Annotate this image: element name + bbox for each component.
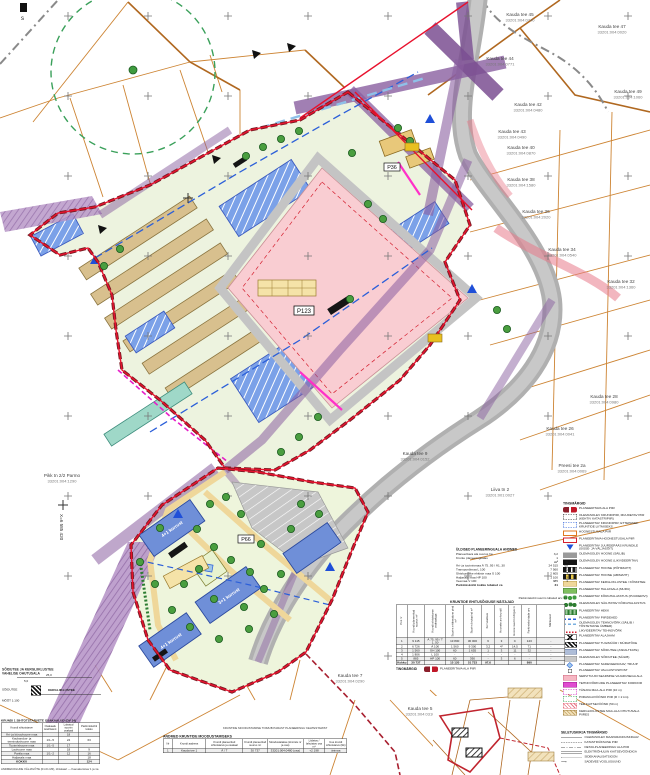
parcel-name: Kauda tee 36: [522, 209, 550, 214]
balance-label: Parkimiskohti kokku lubatud ca: [456, 584, 541, 588]
survey-cross: [384, 572, 392, 580]
column-header: Uue krundi sihtotstarve (liik): [325, 739, 347, 749]
legend-item-label: PLANEERITAV PIIRDEAED: [579, 616, 617, 619]
parcel-name: Kauda tee 42: [514, 102, 542, 107]
tree-icon: [315, 510, 322, 517]
survey-cross: [624, 252, 632, 260]
table-cell: 6: [481, 638, 495, 645]
parcel-code: 33201:004:0740: [506, 17, 536, 22]
parcel-code: 33201:004:0290: [336, 678, 366, 683]
legend-item: HOONESTUSALA PIIR: [563, 530, 649, 536]
table-cell: [508, 661, 522, 665]
parcel-name: Kauda tee 7: [338, 673, 363, 678]
line-legend-item: KATASTRIÜKSUSE PIIR: [561, 741, 650, 744]
table-row: 1Kauda tee 1Ä / T30 73733201:004:0480 (o…: [163, 749, 347, 753]
column-header: Parkimiskohti kokku: [79, 723, 100, 733]
tree-icon: [314, 413, 321, 420]
tree-icon: [227, 556, 234, 563]
table-cell: Kaubandus- ja teenindushoone maa: [1, 737, 42, 744]
north-arrow-icon: s: [20, 3, 27, 22]
line-legend-list: OLEMASOLEV MAAPARANDUSKRAAVKATASTRIÜKSUS…: [561, 736, 650, 764]
table-cell: [495, 661, 508, 665]
parcel-code: 33201:004:0980: [590, 399, 620, 404]
ls-dotted-icon: [561, 757, 582, 758]
table-cell: 890: [522, 661, 537, 665]
parcel-code: 33201:004:1060: [614, 94, 644, 99]
dimension-total: 25,0: [46, 674, 52, 677]
line-legend-label: SADEVEE VOOLUSUUND: [585, 760, 621, 763]
survey-cross: [224, 92, 232, 100]
boundary-legend-inline: TINGMÄRGID PLANEERITAVA ALA PIIR: [396, 667, 568, 673]
sw-dashblue-icon: [563, 522, 577, 528]
table-cell: [58, 760, 78, 764]
ls-dashed-icon: [561, 742, 582, 743]
survey-cross: [544, 92, 552, 100]
legend-item-label: PLANEERITAV TUGIMÜÜR / MÜRATÕKE: [579, 642, 637, 645]
column-header: Korruselisus: [481, 605, 495, 638]
tree-icon: [493, 306, 500, 313]
column-header: Hoone suurim kõrgus m: [508, 605, 522, 638]
column-header-text: Pos nr: [400, 617, 403, 625]
line-legend-panel: SELETUSKIRJA TINGMÄRGID OLEMASOLEV MAAPA…: [561, 731, 650, 775]
survey-cross: [624, 172, 632, 180]
section-diagram: 25,0 5,0 SÕIDUTEE KERGLIIKLUSTEE MÕÕT 1:…: [2, 678, 157, 706]
column-header-text: Märkused: [549, 615, 552, 627]
legend-item: PLANEERITAV KÕRGHALJASTUS (PUUDERIVI): [563, 595, 649, 601]
tree-icon: [215, 635, 222, 642]
survey-cross: [64, 92, 72, 100]
sw-redpair-icon: [563, 507, 577, 513]
tree-icon: [116, 245, 123, 252]
table-cell: 13 800: [446, 638, 464, 645]
table-cell: 15 120: [446, 661, 464, 665]
survey-cross: [64, 332, 72, 340]
dimension-left: 5,0: [24, 680, 28, 683]
table-cell: -: [537, 638, 565, 645]
survey-cross: [624, 12, 632, 20]
legend-item-label: PLANEERITAV SÕIDUTEE (ASFALTKATE): [579, 649, 639, 652]
balance-percent: [558, 584, 568, 588]
section-title-2: VAHELISE OHUTUSALA: [2, 672, 157, 676]
tree-icon: [346, 295, 353, 302]
legend-list: PLANEERITAVA ALA PIIROLEMASOLEV KRUNDIPI…: [563, 507, 649, 717]
column-header: Liidetav / lahutatav osa m²: [303, 739, 325, 749]
table-cell: 124: [79, 760, 100, 764]
table-row: Kaubandus- ja teenindushoone maa1/1–5246…: [1, 737, 100, 744]
legend-item-label: PLANEERITAV SADEVEEKRAAV; TRUUP: [579, 663, 638, 666]
parcel-name: Kauda tee 49: [614, 89, 642, 94]
table-cell: Ä / T: [206, 749, 243, 753]
building-rights-table: Pos nrKrundi planeeritud suurus m²Krundi…: [396, 605, 565, 666]
survey-cross: [64, 492, 72, 500]
column-header: Krundi planeeritud suurus m²: [407, 605, 424, 638]
table-cell: Kokku: [396, 661, 407, 665]
boundary-swatch-icon: [424, 667, 438, 673]
parcel-name: Liiva tn 2: [491, 487, 510, 492]
column-header-text: Hoone suurim kõrgus m: [513, 606, 516, 636]
parcel-code: 33201:004:0480: [514, 107, 544, 112]
table-cell: 123: [522, 638, 537, 645]
legend-item: TÄNAVA MAA-ALA PIIR (10 m): [563, 689, 649, 695]
sw-tanhatch-icon: [563, 710, 577, 716]
tree-icon: [245, 625, 252, 632]
tree-icon: [100, 262, 107, 269]
legend-item-label: PLANEERITAV KRUNDIPIIR; ETTEPANEK KRUNTI…: [579, 522, 649, 529]
table-cell: C: [508, 638, 522, 645]
line-legend-label: OLEMASOLEV MAAPARANDUSKRAAV: [585, 736, 639, 739]
svg-text:s: s: [21, 16, 24, 22]
legend-item-label: OLEMASOLEV HOONE (SÄILIB): [579, 553, 625, 556]
legend-item: OLEMASOLEV HOONE (LIKVIDEERITAV): [563, 560, 649, 566]
legend-item: PLANEERITAV VALGUSTUSPOST: [563, 669, 649, 673]
line-legend-label: ELEKTRIÕHULIIN KAITSEVÖÖNDIGA: [585, 751, 637, 754]
parcel-code: 33201:001:0027: [486, 492, 516, 497]
building-rights-panel: Parkimiskohti suurim lubatud arv: 31 KRU…: [396, 597, 568, 705]
legend-item: PLANEERITAV SÕIDUTEE (ASFALTKATE): [563, 649, 649, 655]
legend-item-label: PLANEERITAV HOONE (PÕHIMAHT): [579, 567, 631, 570]
line-legend-label: DETAILPLANEERINGU ALA PIIR: [585, 746, 630, 749]
legend-item: OLEMASOLEV HOONE (SÄILIB): [563, 553, 649, 559]
tree-icon: [180, 580, 187, 587]
column-header-text: Korruselisus: [487, 613, 490, 628]
tree-icon: [257, 540, 264, 547]
column-header-text: Parkimiskohtade arv: [528, 608, 531, 633]
column-header: Nr: [163, 739, 172, 749]
table-cell: 9 115: [407, 638, 424, 645]
tree-icon: [277, 448, 284, 455]
parcel-code: 33201:004:0020: [598, 29, 628, 34]
tree-icon: [136, 558, 143, 565]
column-header: Hoonete arv krundil: [495, 605, 508, 638]
legend-item-label: PLANEERITAV HALJASALA (MURU): [579, 588, 630, 591]
legend-item: PLANEERITAV HEKK: [563, 609, 649, 615]
parcel-code: 33201:004:1580: [507, 182, 537, 187]
ls-solid-icon: [561, 737, 582, 738]
legend-item: OLEMASOLEV SÕIDUTEE (SÄILIB): [563, 656, 649, 662]
table-cell: 1/1–5: [42, 737, 58, 744]
parcel-name: Kauda tee 9: [403, 451, 428, 456]
tree-icon: [348, 149, 355, 156]
tree-icon: [277, 570, 284, 577]
line-legend-label: KATASTRIÜKSUSE PIIR: [585, 741, 618, 744]
column-header-text: Krundi sihtotstarve osakaaluga: [432, 605, 438, 636]
table-cell: ärimaa: [325, 749, 347, 753]
survey-cross: [64, 572, 72, 580]
share-table: Krundi sihtotstarveOsakaalu koefitsientL…: [1, 723, 100, 765]
legend-item-label: PIIRANGUVÖÖNDI PIIR (R = 2 km): [579, 696, 628, 699]
dimension-line: [17, 678, 92, 679]
formation-table: NrKrundi aadressKrundi planeeritud sihto…: [163, 739, 347, 754]
survey-cross: [544, 12, 552, 20]
tree-icon: [193, 525, 200, 532]
legend-item-label: PLANEERITAV JUURDEPÄÄS KRUNDILE (SISSE- …: [579, 544, 649, 551]
sw-lamp-icon: [568, 669, 572, 673]
restriction-circle: [51, 0, 215, 154]
line-legend-title: SELETUSKIRJA TINGMÄRGID: [561, 731, 650, 735]
legend-item-label: SERVITUUDI SEADMISE VAJADUSEGA ALA: [579, 675, 642, 678]
tree-icon: [242, 152, 249, 159]
column-header-text: Suurim ehitisealune pind m²: [452, 605, 458, 636]
column-header: Krundi planeeritud suurus m²: [243, 739, 267, 749]
survey-cross: [304, 12, 312, 20]
survey-cross: [64, 412, 72, 420]
legend-item-label: TEE KAITSEVÖÖND (50 m): [579, 703, 618, 706]
legend-item: OLEMASOLEV KRUNDIPIIR, MUUDETAV PIIR (KE…: [563, 514, 649, 521]
legend-item-label: PLANEERITAV ALAJAAM: [579, 635, 615, 638]
parcel-name: Kauda tee 38: [507, 177, 535, 182]
tree-icon: [259, 143, 266, 150]
parcel-code: 33201:004:0152: [401, 456, 431, 461]
parcel-code: 33201:004:0041: [546, 431, 576, 436]
table-cell: 30 737: [243, 749, 267, 753]
tree-icon: [379, 215, 386, 222]
survey-cross: [464, 252, 472, 260]
table-cell: 63: [79, 737, 100, 744]
pavement-symbol: [31, 686, 41, 696]
legend-item: SERVITUUDI SEADMISE VAJADUSEGA ALA: [563, 675, 649, 681]
legend-item-label: PLANEERITAVA HOONESTUSALA PIIR: [579, 537, 635, 540]
table-total-row: KOKKU124: [1, 760, 100, 764]
column-header: Parkimiskohtade arv: [522, 605, 537, 638]
column-header: Lubatud suurim osakaal: [58, 723, 78, 733]
survey-cross: [384, 412, 392, 420]
tree-icon: [186, 623, 193, 630]
legend-item: LIKVIDEERITAV TEHNOVÕRK: [563, 630, 649, 634]
plot-tag-north: P36: [387, 165, 397, 171]
legend-item: PLANEERITAV SADEVEEKRAAV; TRUUP: [563, 663, 649, 668]
formation-panel: KRUNTIDE MOODUSTAMINE TOIMUB PÄRAST PLAN…: [163, 727, 353, 775]
column-header: Suurim ehitisealune pind m²: [446, 605, 464, 638]
formation-pre-note: KRUNTIDE MOODUSTAMINE TOIMUB PÄRAST PLAN…: [223, 727, 353, 730]
legend-item-label: PLANEERITAV HEKK: [579, 609, 609, 612]
survey-cross: [64, 172, 72, 180]
svg-text:X=6 585 420: X=6 585 420: [59, 514, 64, 541]
survey-cross: [544, 412, 552, 420]
survey-cross: [384, 12, 392, 20]
ls-dashdot-icon: [561, 747, 582, 748]
column-header-text: Hoonete arv krundil: [500, 609, 503, 633]
plot-tag-main: P123: [297, 309, 312, 315]
balance-title: ÜLDISED PLANEERINGUALA ANDMED: [456, 548, 568, 552]
parcel-name: Kauda tee 32: [607, 279, 635, 284]
tree-icon: [151, 580, 158, 587]
line-legend-label: SIDEKANALISATSIOON: [585, 756, 618, 759]
sw-dashblack-icon: [563, 514, 577, 520]
column-header: Krundi sihtotstarve: [1, 723, 42, 733]
table-cell: 33201:004:0480 (osa): [267, 749, 303, 753]
parcel-code: 33201:004:0069: [558, 468, 588, 473]
ls-double-icon: [561, 751, 582, 754]
table-cell: KOKKU: [1, 760, 42, 764]
table-cell: +2 198: [303, 749, 325, 753]
parcel-code: 33201:004:0490: [498, 134, 528, 139]
line-legend-item: SIDEKANALISATSIOON: [561, 756, 650, 759]
detail-plan-sheet: P123 P66 P36 Kauda tee 4533201:004:0740K…: [0, 0, 650, 775]
section-scale: MÕÕT 1:100: [2, 700, 19, 703]
legend-item: OLEMASOLEV TEHNOVÕRK (SÄILIB / TÕSTETAKS…: [563, 622, 649, 629]
table-cell: [42, 760, 58, 764]
parcel-code: 33201:004:2020: [522, 214, 552, 219]
table-cell: [424, 661, 445, 665]
column-header: Suurim brutopind m²: [464, 605, 482, 638]
legend-item-label: OLEMASOLEV KRUNDIPIIR, MUUDETAV PIIR (KE…: [579, 514, 649, 521]
legend-item-label: HOONESTUSALA PIIR: [579, 530, 611, 533]
plot-tag-south: P66: [241, 537, 251, 543]
column-header: Märkused: [537, 605, 565, 638]
legend-item: PLANEERITAVA ALA PIIR: [563, 507, 649, 513]
legend-item-label: OLEMASOLEV TEHNOVÕRK (SÄILIB / TÕSTETAKS…: [579, 622, 649, 629]
survey-cross: [544, 172, 552, 180]
tree-icon: [222, 493, 229, 500]
survey-cross: [224, 12, 232, 20]
sw-redbox-icon: [563, 537, 577, 543]
tree-icon: [394, 124, 401, 131]
column-header: Krundi sihtotstarve osakaaluga: [424, 605, 445, 638]
legend-item: PLANEERITAV KERGLIIKLUSTEE / KÕNNITEE: [563, 581, 649, 587]
table-cell: Kauda tee 1: [172, 749, 205, 753]
legend-item-label: TEHNOVÕRKUDE PLANEERITAV KORIDOR: [579, 682, 642, 685]
legend-item-label: PLANEERITAV KERGLIIKLUSTEE / KÕNNITEE: [579, 581, 645, 584]
column-header-text: Krundi planeeritud suurus m²: [413, 605, 419, 636]
legend-item: PLANEERITAV HALJASALA (MURU): [563, 588, 649, 594]
parcel-name: Kauda tee 34: [548, 247, 576, 252]
parcel-name: Kauda tee 47: [598, 24, 626, 29]
table-cell: 30 000: [464, 638, 482, 645]
sw-orangebox-icon: [563, 530, 577, 536]
parcel-code: 33201:004:0310: [406, 711, 436, 716]
table-cell: 24: [58, 737, 78, 744]
survey-cross: [544, 492, 552, 500]
tree-icon: [210, 543, 217, 550]
survey-cross: [144, 92, 152, 100]
table-cell: 97,6: [481, 661, 495, 665]
balance-row: Parkimiskohti kokku lubatud ca31: [456, 584, 568, 588]
legend-title: TINGMÄRGID: [563, 502, 649, 506]
parcel-name: Kauda tee 44: [486, 56, 514, 61]
legend-item: PLANEERITAV HOONE (ABIMAHT): [563, 574, 649, 580]
parcel-name: Pikk tn 2/2 Parmo: [44, 473, 81, 478]
legend-item-label: OLEMASOLEV SÄILITATAV KÕRGHALJASTUS: [579, 602, 645, 605]
tree-icon: [503, 325, 510, 332]
legend-item: PLANEERITAVA HOONESTUSALA PIIR: [563, 537, 649, 543]
legend-item: PLANEERITAV HOONE (PÕHIMAHT): [563, 567, 649, 573]
legend-item-label: PLANEERITAV VALGUSTUSPOST: [579, 669, 628, 672]
legend-item: PLANEERITAV PIIRDEAED: [563, 616, 649, 620]
survey-cross: [624, 332, 632, 340]
tree-icon: [168, 606, 175, 613]
parcel-name: Kauda tee 5: [408, 706, 433, 711]
legend-item-label: LIKVIDEERITAV TEHNOVÕRK: [579, 630, 622, 633]
parcel-name: Kauda tee 40: [507, 145, 535, 150]
parcel-name: Kauda tee 43: [498, 129, 526, 134]
parcel-name: Kauda tee 28: [590, 394, 618, 399]
tree-icon: [364, 200, 371, 207]
tree-icon: [295, 433, 302, 440]
legend-item-label: PLANEERITAV KÕRGHALJASTUS (PUUDERIVI): [579, 595, 647, 598]
line-legend-item: ⟶SADEVEE VOOLUSUUND: [561, 760, 650, 763]
line-legend-item: ELEKTRIÕHULIIN KAITSEVÖÖNDIGA: [561, 751, 650, 754]
legend-item-label: TÄNAVA MAA-ALA PIIR (10 m): [579, 689, 622, 692]
tree-icon: [156, 524, 163, 531]
column-header-text: Suurim brutopind m²: [471, 608, 474, 633]
ls-arrow-icon: ⟶: [561, 761, 582, 763]
legend-panel: TINGMÄRGID PLANEERITAVA ALA PIIROLEMASOL…: [563, 502, 649, 728]
tree-icon: [260, 585, 267, 592]
parcel-code: 33201:004:1360: [607, 284, 637, 289]
tree-icon: [237, 510, 244, 517]
parcel-name: Preesi tee 2a: [558, 463, 586, 468]
path-line: [41, 694, 101, 695]
legend-item-label: PLANEERITAVA ALA PIIR: [579, 507, 615, 510]
survey-cross: [464, 332, 472, 340]
tree-icon: [195, 565, 202, 572]
line-legend-item: DETAILPLANEERINGU ALA PIIR: [561, 746, 650, 749]
table-cell: 1: [396, 638, 407, 645]
survey-cross: [624, 412, 632, 420]
parcel-code: 33201:004:0870: [507, 150, 537, 155]
tree-icon: [287, 525, 294, 532]
legend-item-label: KERGLIIKLUSTEE MAA-ALA OHUTUSALA PIIRES: [579, 710, 649, 717]
column-header: Osakaalu koefitsient: [42, 723, 58, 733]
legend-item: TEE KAITSEVÖÖND (50 m): [563, 703, 649, 709]
tree-icon: [277, 135, 284, 142]
table-cell: Äri- ja büroohoone maa: [1, 733, 42, 737]
column-header: Moodustatakse (kinnistu nr ja osa): [267, 739, 303, 749]
table-cell: 30 737: [407, 661, 424, 665]
column-header: Krundi aadress: [172, 739, 205, 749]
section-panel: SÕIDUTEE JA KERGLIIKLUSTEE VAHELISE OHUT…: [2, 668, 157, 718]
table-cell: 51 733: [464, 661, 482, 665]
section-label-right: KERGLIIKLUSTEE: [48, 689, 75, 693]
section-label-left: SÕIDUTEE: [2, 689, 17, 692]
legend-item-label: OLEMASOLEV HOONE (LIKVIDEERITAV): [579, 560, 638, 563]
legend-item: PLANEERITAV ALAJAAM: [563, 635, 649, 641]
table-cell: 1: [163, 749, 172, 753]
balance-panel: ÜLDISED PLANEERINGUALA ANDMED Planeerita…: [456, 548, 568, 604]
table-cell: 3: [495, 638, 508, 645]
tree-icon: [297, 500, 304, 507]
legend-item-label: PLANEERITAV HOONE (ABIMAHT): [579, 574, 629, 577]
column-header: Pos nr: [396, 605, 407, 638]
table-cell: [537, 661, 565, 665]
parcel-name: Kauda tee 26: [546, 426, 574, 431]
inline-legend-header: TINGMÄRGID: [396, 668, 417, 672]
table-row: 19 115Ä 75..95 / T 1..5013 80030 00063C1…: [396, 638, 565, 645]
parcel-code: 33201:004:1290: [48, 478, 78, 483]
parcel-name: Kauda tee 45: [506, 12, 534, 17]
tree-icon: [295, 127, 302, 134]
survey-cross: [144, 492, 152, 500]
legend-item: PLANEERITAV JUURDEPÄÄS KRUNDILE (SISSE- …: [563, 544, 649, 551]
survey-cross: [384, 652, 392, 660]
legend-item: PIIRANGUVÖÖNDI PIIR (R = 2 km): [563, 696, 649, 702]
tree-icon: [206, 500, 213, 507]
balance-value: 31: [541, 584, 558, 588]
tree-icon: [270, 610, 277, 617]
table-total-row: Kokku30 73715 12051 73397,6890: [396, 661, 565, 665]
legend-item-label: OLEMASOLEV SÕIDUTEE (SÄILIB): [579, 656, 629, 659]
line-legend-item: OLEMASOLEV MAAPARANDUSKRAAV: [561, 736, 650, 739]
balance-rows: Planeeritava ala suurus ha3,2Krunte plan…: [456, 553, 568, 588]
legend-item: TEHNOVÕRKUDE PLANEERITAV KORIDOR: [563, 682, 649, 688]
survey-cross: [464, 492, 472, 500]
parcel-code: 33201:004:0540: [548, 252, 578, 257]
parcel-code: 33201:004:0771: [486, 61, 516, 66]
legend-item: KERGLIIKLUSTEE MAA-ALA OHUTUSALA PIIRES: [563, 710, 649, 717]
tree-icon: [240, 603, 247, 610]
column-header: Krundi planeeritud sihtotstarve ja osaka…: [206, 739, 243, 749]
legend-item: PLANEERITAV TUGIMÜÜR / MÜRATÕKE: [563, 642, 649, 648]
